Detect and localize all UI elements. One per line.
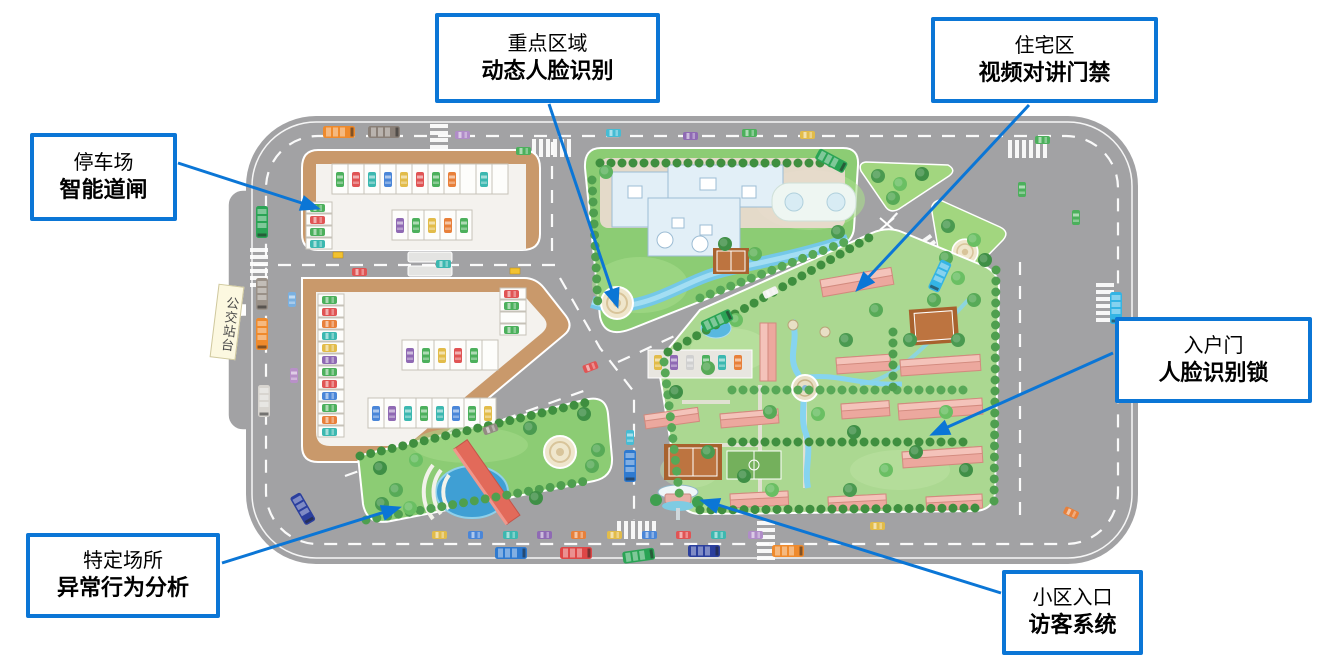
callout-specific-place-feature: 异常行为分析 [57, 574, 189, 602]
smart-community-diagram: 公交站台 停车场 智能道闸 重点区域 动态人脸识别 住宅区 视频对讲门禁 入户门… [0, 0, 1319, 668]
barrier-gate [333, 252, 343, 258]
callout-entrance-feature: 访客系统 [1028, 611, 1116, 639]
callout-entrance-title: 小区入口 [1033, 586, 1113, 611]
callout-key-area-title: 重点区域 [508, 32, 588, 57]
callout-residential-feature: 视频对讲门禁 [978, 59, 1110, 87]
barrier-gate [510, 268, 520, 274]
circular-plaza [601, 287, 633, 319]
callout-entry-door-feature: 人脸识别锁 [1158, 359, 1268, 387]
callout-key-area: 重点区域 动态人脸识别 [435, 13, 660, 103]
callout-specific-place-title: 特定场所 [83, 549, 163, 574]
callout-specific-place: 特定场所 异常行为分析 [26, 533, 220, 618]
park-plaza [544, 436, 576, 468]
callout-parking-feature: 智能道闸 [59, 176, 147, 204]
callout-parking-title: 停车场 [74, 151, 134, 176]
callout-entry-door: 入户门 人脸识别锁 [1115, 317, 1312, 403]
callout-residential: 住宅区 视频对讲门禁 [931, 17, 1158, 103]
callout-entry-door-title: 入户门 [1184, 334, 1244, 359]
callout-key-area-feature: 动态人脸识别 [481, 57, 613, 85]
callout-entrance: 小区入口 访客系统 [1002, 570, 1143, 655]
callout-residential-title: 住宅区 [1015, 34, 1075, 59]
callout-parking: 停车场 智能道闸 [30, 133, 177, 221]
